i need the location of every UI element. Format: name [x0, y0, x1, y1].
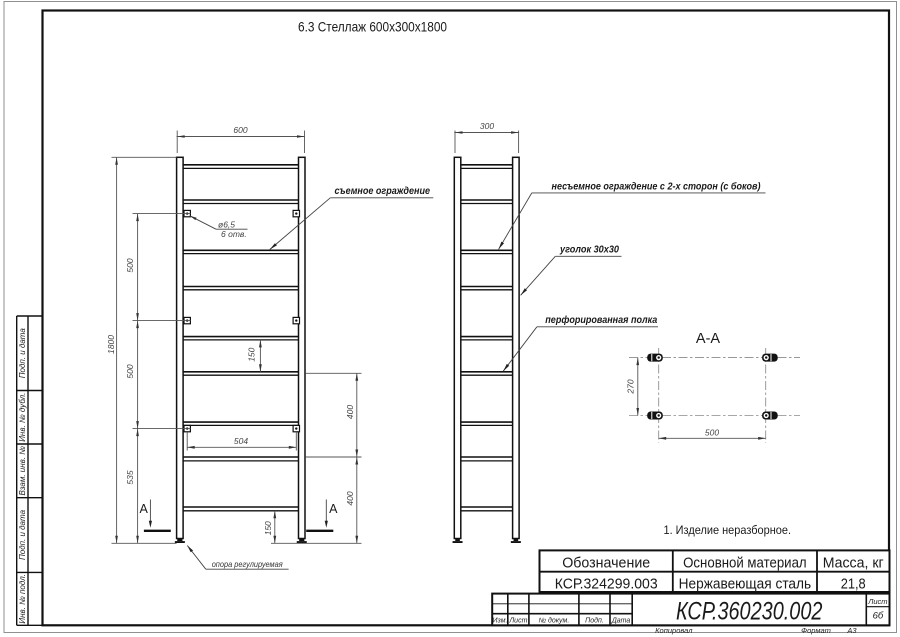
svg-text:400: 400	[345, 491, 355, 505]
svg-text:500: 500	[125, 364, 135, 378]
svg-text:ø6,5: ø6,5	[218, 219, 235, 229]
svg-text:600: 600	[233, 125, 247, 135]
svg-text:500: 500	[705, 427, 719, 437]
svg-text:опора регулируемая: опора регулируемая	[212, 559, 283, 569]
svg-text:Дата: Дата	[611, 617, 631, 624]
svg-text:6 отв.: 6 отв.	[221, 229, 247, 239]
svg-text:21,8: 21,8	[841, 576, 866, 593]
svg-text:300: 300	[480, 121, 494, 131]
svg-text:Инв. № подл.: Инв. № подл.	[18, 574, 27, 624]
svg-text:Основной материал: Основной материал	[683, 555, 807, 572]
svg-text:Формат: Формат	[801, 626, 831, 635]
svg-text:Нержавеющая сталь: Нержавеющая сталь	[679, 576, 812, 593]
svg-text:несъемное ограждение с 2-х сто: несъемное ограждение с 2-х сторон (с бок…	[552, 180, 762, 192]
svg-text:270: 270	[625, 379, 635, 394]
svg-text:Лист: Лист	[867, 597, 887, 606]
svg-text:6б: 6б	[873, 611, 884, 622]
svg-text:А-А: А-А	[696, 331, 721, 347]
svg-text:535: 535	[125, 470, 135, 484]
svg-text:Подп.: Подп.	[585, 616, 604, 624]
svg-text:400: 400	[345, 405, 355, 419]
svg-text:500: 500	[125, 258, 135, 272]
svg-text:Взам. инв. №: Взам. инв. №	[18, 446, 27, 496]
svg-text:КСР.360230.002: КСР.360230.002	[676, 598, 823, 626]
svg-text:№ докум.: № докум.	[538, 616, 569, 624]
svg-text:Копировал: Копировал	[655, 626, 693, 635]
svg-text:съемное ограждение: съемное ограждение	[335, 186, 431, 197]
svg-text:6.3 Стеллаж 600х300х1800: 6.3 Стеллаж 600х300х1800	[298, 19, 447, 35]
svg-text:150: 150	[263, 521, 273, 535]
svg-text:Подп. и дата: Подп. и дата	[18, 328, 27, 379]
svg-text:Обозначение: Обозначение	[562, 555, 650, 572]
svg-text:А: А	[140, 502, 149, 516]
svg-text:А: А	[329, 502, 338, 516]
svg-text:504: 504	[234, 436, 248, 446]
svg-text:Подп. и дата: Подп. и дата	[18, 509, 27, 560]
svg-text:Изм.: Изм.	[493, 617, 508, 624]
svg-text:1800: 1800	[106, 335, 116, 354]
svg-text:Масса, кг: Масса, кг	[823, 555, 884, 572]
svg-text:перфорированная полка: перфорированная полка	[545, 314, 657, 326]
svg-text:150: 150	[247, 347, 257, 361]
svg-text:Инв. № дубл.: Инв. № дубл.	[18, 393, 27, 442]
svg-text:уголок 30х30: уголок 30х30	[559, 244, 619, 255]
svg-text:А3: А3	[846, 626, 857, 635]
svg-text:КСР.324299.003: КСР.324299.003	[555, 576, 658, 593]
svg-text:Лист: Лист	[508, 617, 527, 624]
svg-text:1. Изделие неразборное.: 1. Изделие неразборное.	[664, 523, 792, 537]
